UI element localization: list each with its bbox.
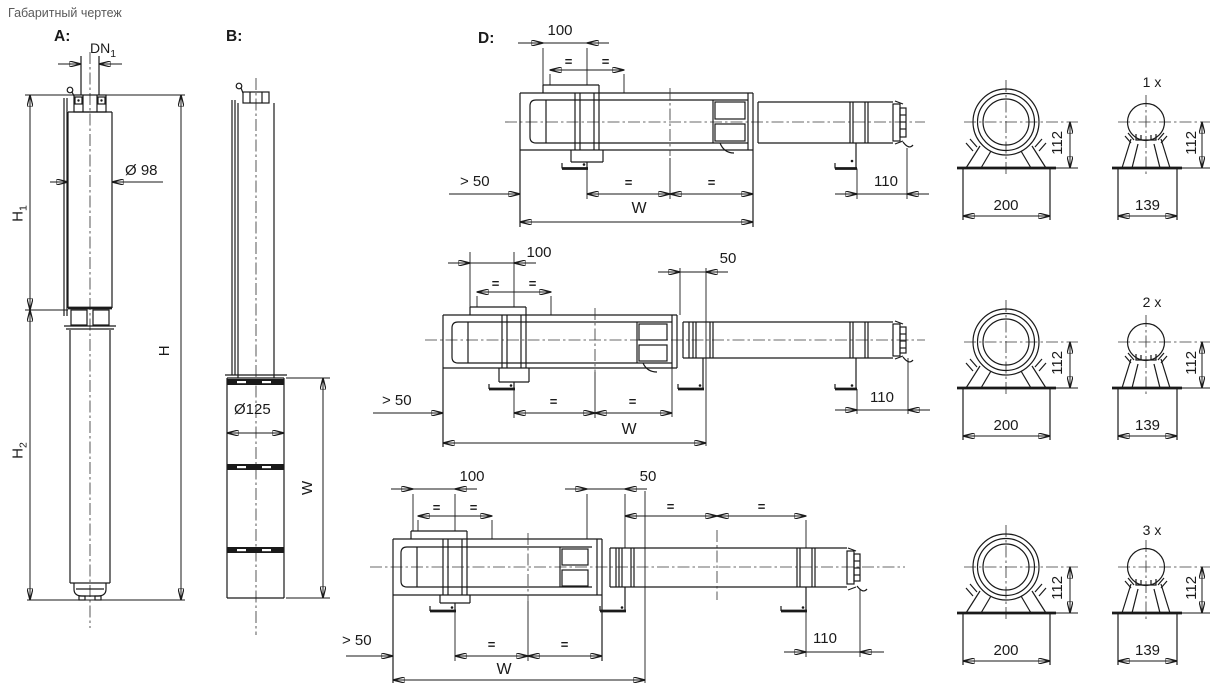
dim-d2-pipe-offset: 100 [515, 245, 563, 261]
drawing-title: Габаритный чертеж [8, 7, 122, 20]
dim-d3-gap: 50 [630, 469, 666, 485]
view-a-label: A: [54, 29, 70, 45]
dim-d3-equal-b: = [467, 501, 480, 515]
dim-d1-equal-b: = [599, 55, 612, 69]
dim-d1-width: W [627, 201, 651, 218]
dim-sect1-axis-height-shroud: 112 [1050, 122, 1066, 164]
dim-sect1-base-shroud: 200 [978, 198, 1034, 214]
dim-d3-equal-a: = [430, 501, 443, 515]
dim-d3-width: W [492, 662, 516, 679]
dim-a-dn1: DN1 [90, 41, 116, 60]
view-d-row3 [346, 489, 905, 683]
dim-d2-clearance: > 50 [382, 393, 412, 409]
dim-d3-pipe-offset: 100 [448, 469, 496, 485]
dim-sect2-base-motor: 139 [1118, 418, 1177, 434]
dim-b-width: W [300, 467, 316, 509]
dim-sect3-axis-height-motor: 112 [1184, 567, 1200, 609]
dim-d3-equal-motor-a: = [664, 500, 677, 514]
dim-b-diameter: Ø125 [234, 402, 271, 418]
dim-d3-equal-motor-b: = [755, 500, 768, 514]
dim-d2-equal-c: = [547, 395, 560, 409]
dim-d1-clearance: > 50 [460, 174, 490, 190]
dim-a-h1: H1 [10, 193, 29, 235]
dim-a-diameter: Ø 98 [125, 163, 158, 179]
dim-d2-equal-b: = [526, 277, 539, 291]
section-count-row3: 3 x [1132, 523, 1172, 538]
dim-d1-pipe-offset: 100 [536, 23, 584, 39]
dim-sect1-axis-height-motor: 112 [1184, 122, 1200, 164]
section-count-row2: 2 x [1132, 295, 1172, 310]
dim-d2-gap: 50 [710, 251, 746, 267]
dim-d2-width: W [617, 422, 641, 439]
dim-d1-motor-overhang: 110 [862, 174, 910, 190]
view-d-row2 [373, 252, 930, 447]
view-d-label: D: [478, 31, 494, 47]
dim-sect2-base-shroud: 200 [978, 418, 1034, 434]
dim-d3-equal-c: = [485, 638, 498, 652]
view-d-row1 [449, 43, 929, 227]
dim-a-h2: H2 [10, 430, 29, 472]
dimensional-drawing-canvas: Габаритный чертеж A: B: D: DN1 Ø 98 H1 H… [0, 0, 1218, 687]
dim-d2-motor-overhang: 110 [858, 390, 906, 406]
dim-sect3-base-motor: 139 [1118, 643, 1177, 659]
dim-sect2-axis-height-motor: 112 [1184, 342, 1200, 384]
dim-sect3-axis-height-shroud: 112 [1050, 567, 1066, 609]
dim-sect2-axis-height-shroud: 112 [1050, 342, 1066, 384]
drawing-linework [0, 0, 1218, 687]
dim-sect1-base-motor: 139 [1118, 198, 1177, 214]
dim-d1-equal-d: = [705, 176, 718, 190]
dim-d1-equal-a: = [562, 55, 575, 69]
dim-d2-equal-d: = [626, 395, 639, 409]
dim-d3-clearance: > 50 [342, 633, 372, 649]
view-b-label: B: [226, 29, 242, 45]
dim-d3-motor-overhang: 110 [801, 631, 849, 647]
dim-sect3-base-shroud: 200 [978, 643, 1034, 659]
view-b-pump-shroud [225, 78, 330, 635]
dim-d1-equal-c: = [622, 176, 635, 190]
section-count-row1: 1 x [1132, 75, 1172, 90]
dim-d2-equal-a: = [489, 277, 502, 291]
dim-a-h-total: H [157, 330, 173, 372]
dim-d3-equal-d: = [558, 638, 571, 652]
